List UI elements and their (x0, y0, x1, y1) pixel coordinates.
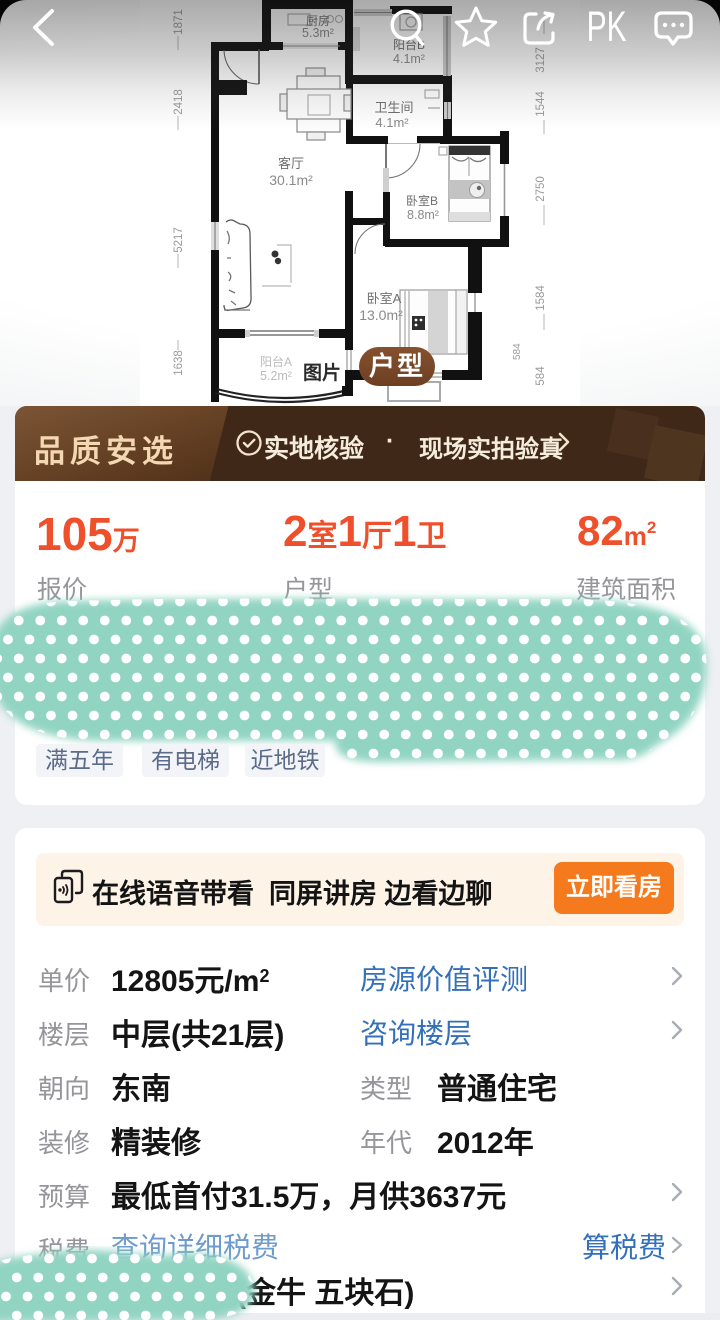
svg-text:PK: PK (587, 2, 627, 51)
svg-text:8.8m²: 8.8m² (407, 208, 439, 222)
svg-text:584: 584 (535, 366, 547, 386)
svg-text:卧室B: 卧室B (406, 193, 438, 208)
svg-text:30.1m²: 30.1m² (269, 172, 313, 188)
svg-text:5.2m²: 5.2m² (260, 369, 292, 383)
svg-text:2750: 2750 (535, 176, 547, 202)
svg-text:13.0m²: 13.0m² (359, 307, 403, 323)
svg-text:阳台A: 阳台A (260, 354, 292, 369)
svg-text:1638: 1638 (173, 350, 185, 376)
svg-text:卧室A: 卧室A (367, 291, 402, 306)
svg-text:584: 584 (512, 343, 523, 360)
svg-text:1584: 1584 (535, 285, 547, 311)
svg-text:客厅: 客厅 (278, 156, 304, 171)
svg-text:5217: 5217 (173, 227, 185, 253)
